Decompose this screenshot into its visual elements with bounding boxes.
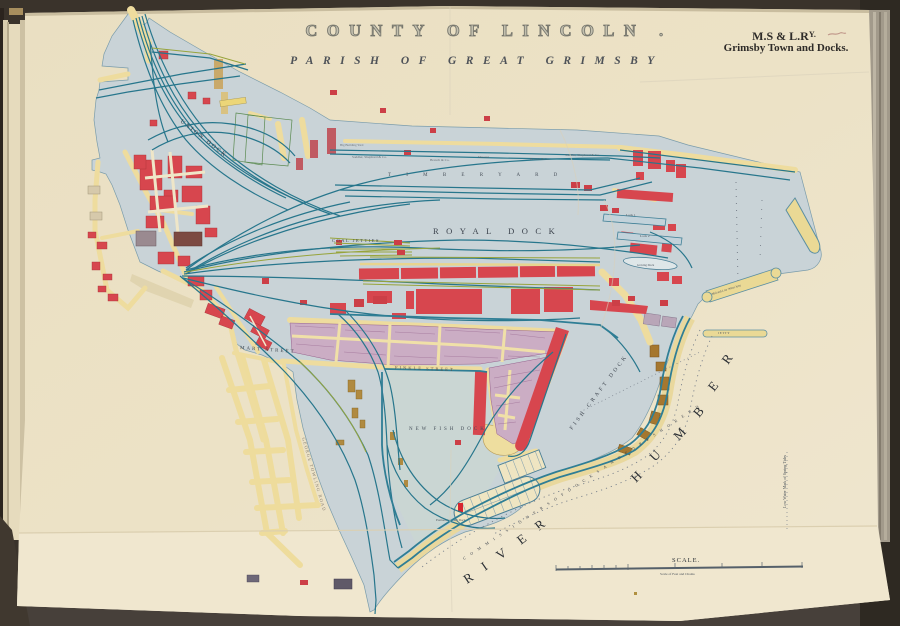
svg-text:Graving Dock: Graving Dock xyxy=(637,263,655,267)
svg-text:SCALE.: SCALE. xyxy=(672,557,700,564)
svg-text:T I M B E R Y A R D: T I M B E R Y A R D xyxy=(388,173,564,178)
svg-text:J E T T Y: J E T T Y xyxy=(718,331,730,335)
svg-text:Branch & Co.: Branch & Co. xyxy=(530,157,550,161)
svg-text:NEW FISH DOCK: NEW FISH DOCK xyxy=(409,427,487,432)
svg-text:Branch & Co.: Branch & Co. xyxy=(430,158,450,162)
svg-text:Scale of Feet and Chains: Scale of Feet and Chains xyxy=(660,572,695,576)
svg-text:PARISH OF GREAT GRIMSBY: PARISH OF GREAT GRIMSBY xyxy=(290,55,664,67)
svg-text:Big Building Yard: Big Building Yard xyxy=(340,143,364,147)
svg-text:COUNTY OF LINCOLN .: COUNTY OF LINCOLN . xyxy=(305,21,672,40)
svg-text:Low Water Mark of Spring Tides: Low Water Mark of Spring Tides xyxy=(782,455,787,508)
svg-text:Lock 1: Lock 1 xyxy=(626,213,636,217)
svg-text:COAL JETTIES: COAL JETTIES xyxy=(332,238,380,243)
svg-text:ROYAL DOCK: ROYAL DOCK xyxy=(433,226,562,236)
svg-text:Lock 2: Lock 2 xyxy=(640,234,650,238)
svg-text:Grimsby Town and Docks.: Grimsby Town and Docks. xyxy=(724,42,849,54)
svg-text:Vincent: Vincent xyxy=(478,155,489,159)
svg-text:M.S & L.RY.: M.S & L.RY. xyxy=(752,29,816,43)
